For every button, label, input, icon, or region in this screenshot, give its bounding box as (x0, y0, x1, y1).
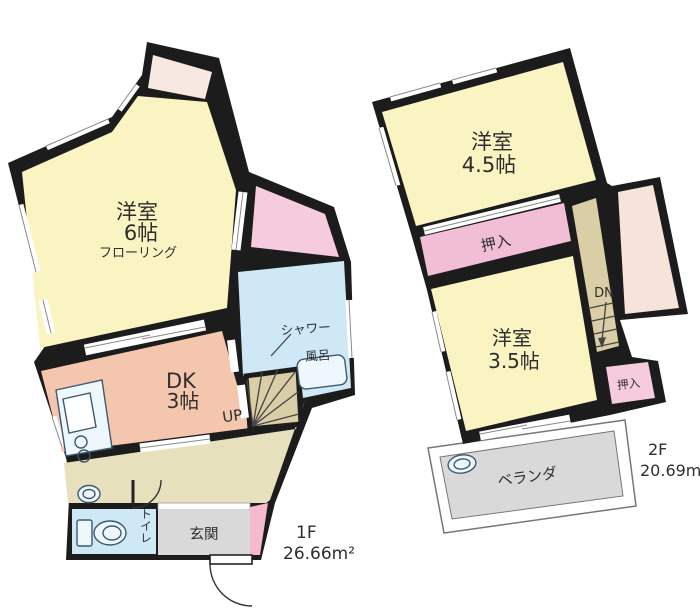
front-door (210, 555, 252, 606)
floor-plan-canvas: 洋室 6帖 フローリング DK 3帖 UP シャワー 風呂 トイレ 玄関 1F … (0, 0, 700, 610)
label-oshiire-small: 押入 (616, 376, 641, 393)
label-room45-size: 4.5帖 (462, 153, 516, 177)
washbasin (78, 486, 100, 503)
toilet-fixture (77, 520, 126, 546)
label-1f: 1F (296, 523, 317, 543)
label-dn: DN (594, 286, 614, 301)
label-entrance: 玄関 (190, 526, 219, 543)
floor2-plan: 洋室 4.5帖 押入 DN 洋室 3.5帖 押入 ベランダ 2F 20.69m² (372, 48, 700, 533)
kitchen-sink (63, 393, 96, 433)
label-up: UP (221, 406, 243, 427)
label-room35-name: 洋室 (492, 326, 532, 350)
label-room45-name: 洋室 (471, 130, 513, 154)
label-room6-flooring: フローリング (99, 246, 177, 261)
label-2f: 2F (648, 440, 667, 459)
label-bath: 風呂 (305, 347, 331, 364)
floor1-plan: 洋室 6帖 フローリング DK 3帖 UP シャワー 風呂 トイレ 玄関 1F … (8, 42, 355, 606)
label-1f-area: 26.66m² (283, 544, 355, 564)
label-room35-size: 3.5帖 (488, 349, 540, 373)
label-room6-size: 6帖 (124, 221, 158, 245)
floor-plan-image: 洋室 6帖 フローリング DK 3帖 UP シャワー 風呂 トイレ 玄関 1F … (0, 0, 700, 610)
label-2f-area: 20.69m² (640, 461, 700, 480)
label-dk-size: 3帖 (167, 389, 200, 413)
entrance-step (158, 503, 250, 510)
label-toilet: トイレ (140, 507, 152, 545)
kitchen-counter (56, 380, 112, 462)
